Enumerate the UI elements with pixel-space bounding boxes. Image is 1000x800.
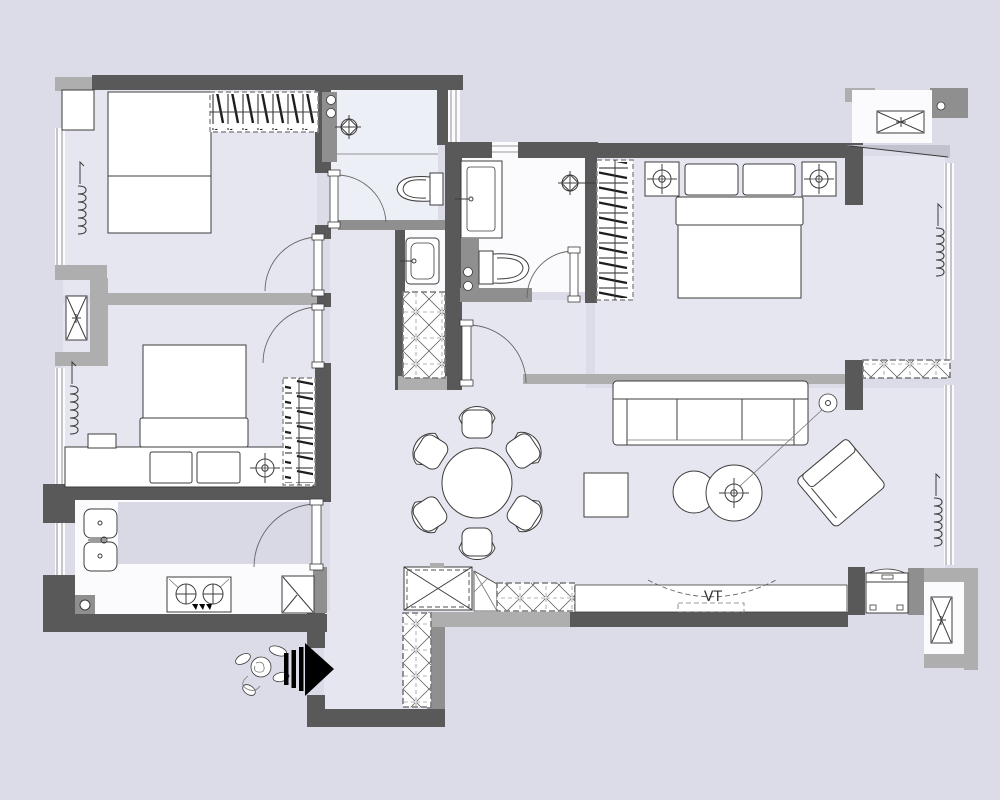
dining-chair xyxy=(459,528,495,560)
vanity-counter xyxy=(455,161,502,238)
wardrobe xyxy=(283,378,315,485)
wall-segment xyxy=(55,77,93,91)
wall-segment xyxy=(92,75,463,90)
wall-segment xyxy=(908,568,925,615)
bed-double xyxy=(678,225,801,298)
wall-segment xyxy=(518,142,598,158)
shoe-cabinet xyxy=(404,563,472,610)
cabinet-x-hatch xyxy=(403,613,431,707)
wall-segment xyxy=(313,567,327,613)
wardrobe xyxy=(597,160,633,300)
pillow xyxy=(197,452,240,483)
wall-segment xyxy=(43,614,327,632)
tv-zone-label: VT xyxy=(704,589,723,605)
light-leader-dot xyxy=(819,394,837,412)
pillow xyxy=(685,164,738,195)
stove xyxy=(167,577,231,612)
pillow xyxy=(150,452,192,483)
window xyxy=(55,523,65,575)
wall-segment xyxy=(570,612,848,627)
wall-segment xyxy=(845,143,863,205)
cabinet-x-hatch xyxy=(497,583,575,611)
bed-headboard xyxy=(140,418,248,447)
flush-button xyxy=(464,268,473,277)
wall-segment xyxy=(445,142,462,390)
bed-single xyxy=(108,92,211,233)
wall-segment xyxy=(55,352,107,366)
wall-segment xyxy=(315,363,331,502)
flush-button xyxy=(464,282,473,291)
window xyxy=(62,90,94,130)
wall-segment xyxy=(338,220,445,230)
person-sketch-icon xyxy=(234,644,290,698)
washing-machine xyxy=(866,569,908,613)
wall-segment xyxy=(55,265,107,280)
wardrobe xyxy=(210,92,318,132)
wall-segment xyxy=(848,567,865,615)
console-box xyxy=(88,434,116,448)
cabinet-x-hatch xyxy=(403,292,445,378)
wash-basin xyxy=(400,238,439,284)
shower-valve xyxy=(327,96,336,105)
sofa xyxy=(613,381,808,445)
wall-segment xyxy=(930,88,968,118)
floor-plan-drawing: VT xyxy=(0,0,1000,800)
wall-segment xyxy=(585,158,597,303)
wall-segment xyxy=(596,143,848,158)
window xyxy=(448,90,460,142)
wall-segment xyxy=(845,360,863,410)
shower-valve xyxy=(327,109,336,118)
bed-headboard xyxy=(676,197,803,225)
cabinet-x-hatch xyxy=(863,360,950,378)
side-table-square xyxy=(584,473,628,517)
kitchen-counter-top xyxy=(118,502,313,564)
wall-segment xyxy=(428,612,570,627)
wall-segment xyxy=(307,709,445,727)
drain-dot xyxy=(937,102,945,110)
window xyxy=(55,368,65,484)
bed-double xyxy=(143,345,246,419)
inner-corridor-floor xyxy=(330,228,396,392)
corner-cabinet xyxy=(282,576,314,613)
ac-unit-icon xyxy=(877,111,924,133)
wall-segment xyxy=(108,293,317,305)
dining-chair xyxy=(459,406,495,438)
window xyxy=(944,163,954,360)
window xyxy=(944,385,954,565)
pillow xyxy=(743,164,795,195)
wall-segment xyxy=(43,484,75,523)
window xyxy=(55,128,65,265)
window xyxy=(492,142,518,158)
ac-unit-icon xyxy=(66,296,87,340)
floor-drain xyxy=(75,595,95,614)
ac-unit-icon xyxy=(931,597,952,643)
wall-segment xyxy=(924,654,978,668)
floor-plan-canvas: VT xyxy=(0,0,1000,800)
